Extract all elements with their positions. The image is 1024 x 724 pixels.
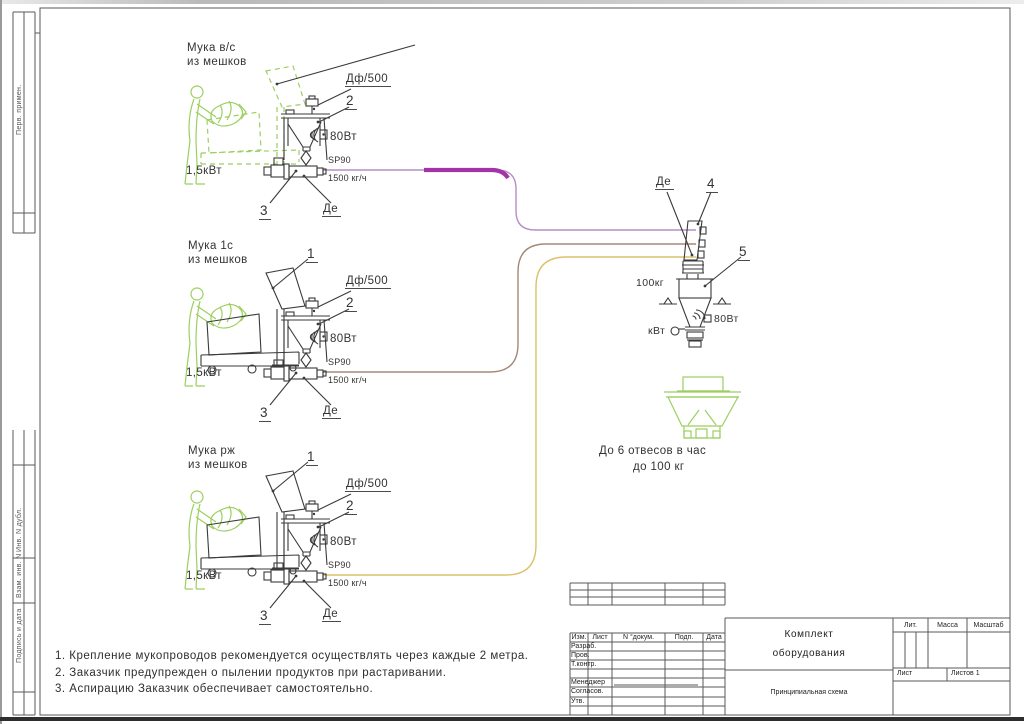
doc-title-line1: Комплект (725, 629, 893, 640)
station-2-art (185, 259, 351, 405)
doc-title-line2: оборудования (725, 648, 893, 659)
station3-callout-3: 3 (259, 608, 271, 625)
station3-capacity: 1500 кг/ч (328, 578, 367, 588)
drawing-sheet: Перв. примен. Инв. N дубл. Взам. инв. N … (0, 0, 1024, 724)
pipe-station1-purple (323, 170, 696, 230)
titleblock-scale: Масштаб (967, 622, 1010, 629)
frame-label-podpis-data: Подпись и дата (16, 608, 23, 663)
frame-label-inv-dubl: Инв. N дубл. (16, 508, 23, 553)
sheet-frame (13, 8, 1010, 715)
station1-callout-2: 2 (345, 93, 357, 110)
station2-gate-label: Де (322, 405, 341, 419)
flour-pipes (323, 170, 696, 575)
notes-block: 1. Крепление мукопроводов рекомендуется … (55, 648, 529, 698)
station1-title-line1: Мука в/с (187, 42, 236, 54)
schematic-artwork (0, 0, 1024, 724)
station2-vibro-label: 80Вт (330, 333, 357, 345)
receiver-callout-4: 4 (706, 176, 718, 193)
station1-capacity: 1500 кг/ч (328, 173, 367, 183)
titleblock-col-data: Дата (703, 634, 725, 641)
throughput-line2: до 100 кг (633, 461, 685, 473)
titleblock-col-list: Лист (588, 634, 612, 641)
station1-feeder-model: SP90 (328, 155, 351, 165)
frame-label-vzam-inv: Взам. инв. N (16, 553, 23, 598)
receiver-vibro-label: 80Вт (714, 313, 739, 325)
station3-drive-label: 1,5кВт (186, 570, 222, 582)
note-2: 2. Заказчик предупрежден о пылении проду… (55, 665, 529, 682)
throughput-line1: До 6 отвесов в час (599, 445, 706, 457)
receiver-weight-label: 100кг (636, 277, 664, 289)
titleblock-sheets: Листов 1 (951, 670, 980, 677)
dough-trolley-art (664, 377, 741, 438)
station2-filter-label: Дф/500 (345, 275, 391, 289)
titleblock-sheet: Лист (897, 670, 912, 677)
station3-filter-label: Дф/500 (345, 478, 391, 492)
titleblock-row-tkontr: Т.контр. (571, 661, 596, 668)
pipe-station1-bold-segment (424, 170, 508, 178)
note-1: 1. Крепление мукопроводов рекомендуется … (55, 648, 529, 665)
station-3-art (185, 462, 351, 608)
titleblock-col-izm: Изм. (570, 634, 588, 641)
station2-drive-label: 1,5кВт (186, 367, 222, 379)
station1-drive-label: 1,5кВт (186, 165, 222, 177)
receiver-gate-label: Де (655, 176, 674, 190)
titleblock-lit: Лит. (893, 622, 928, 629)
station2-capacity: 1500 кг/ч (328, 375, 367, 385)
titleblock-col-ndoc: N °докум. (612, 634, 665, 641)
station3-callout-1: 1 (306, 449, 318, 466)
note-3: 3. Аспирацию Заказчик обеспечивает самос… (55, 681, 529, 698)
station2-callout-2: 2 (345, 295, 357, 312)
station3-feeder-model: SP90 (328, 560, 351, 570)
scheme-name: Принципиальная схема (725, 689, 893, 696)
titleblock-row-utv: Утв. (571, 698, 584, 705)
titleblock-row-razrab: Разраб. (571, 643, 596, 650)
station3-callout-2: 2 (345, 498, 357, 515)
titleblock-mass: Масса (928, 622, 967, 629)
station1-gate-label: Де (322, 203, 341, 217)
station2-callout-1: 1 (306, 246, 318, 263)
station3-title-line2: из мешков (188, 459, 248, 471)
receiver-callout-5: 5 (738, 244, 750, 261)
station1-filter-label: Дф/500 (345, 73, 391, 87)
titleblock-col-podp: Подп. (665, 634, 703, 641)
pipe-station2-brown (323, 244, 696, 372)
titleblock-row-manager: Менеджер (571, 679, 605, 686)
titleblock-row-soglasov: Согласов. (571, 688, 603, 695)
titleblock-row-prov: Пров. (571, 652, 589, 659)
station-1-art (185, 45, 415, 203)
receiver-drive-label: кВт (648, 325, 665, 337)
station1-title-line2: из мешков (187, 56, 247, 68)
station1-callout-3: 3 (259, 203, 271, 220)
scan-bottom-edge (0, 717, 1024, 721)
station3-title-line1: Мука рж (188, 445, 235, 457)
frame-label-perv-primen: Перв. примен. (16, 85, 23, 135)
station3-vibro-label: 80Вт (330, 536, 357, 548)
station3-gate-label: Де (322, 608, 341, 622)
station2-feeder-model: SP90 (328, 357, 351, 367)
pipe-station3-yellow (323, 257, 696, 575)
station2-callout-3: 3 (259, 405, 271, 422)
station2-title-line2: из мешков (188, 254, 248, 266)
station2-title-line1: Мука 1с (188, 240, 233, 252)
station1-vibro-label: 80Вт (330, 131, 357, 143)
